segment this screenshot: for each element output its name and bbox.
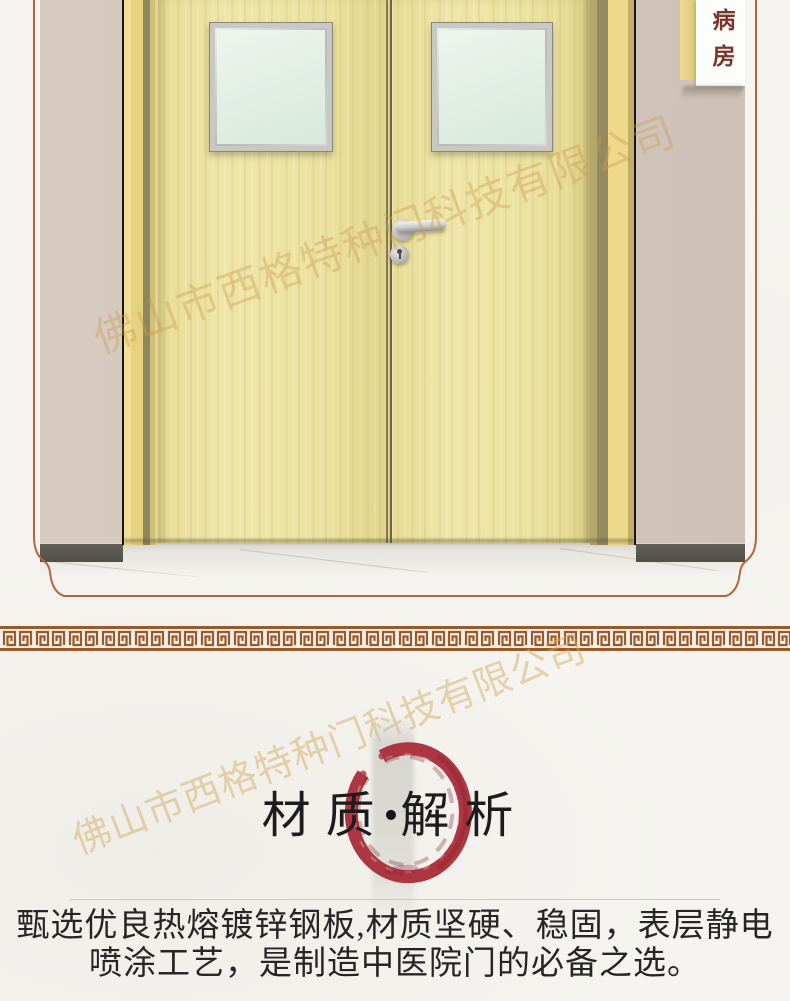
section-title: 材质 • 解析	[0, 787, 790, 845]
body-text: 甄选优良热熔镀锌钢板,材质坚硬、稳固，表层静电 喷涂工艺，是制造中医院门的必备之…	[0, 907, 790, 983]
body-line-1: 甄选优良热熔镀锌钢板,材质坚硬、稳固，表层静电	[0, 907, 790, 945]
page-canvas: 病房 佛山市西格特种门科技有限公司 佛山市西格特种门科技有限公司	[0, 0, 790, 1001]
title-left: 材质	[262, 787, 390, 845]
title-right: 解析	[400, 787, 528, 845]
meander-border	[0, 625, 790, 652]
body-line-2: 喷涂工艺，是制造中医院门的必备之选。	[0, 945, 790, 983]
title-separator-dot: •	[384, 787, 399, 845]
section-divider-line	[70, 899, 720, 900]
decorative-photo-frame	[0, 0, 790, 605]
